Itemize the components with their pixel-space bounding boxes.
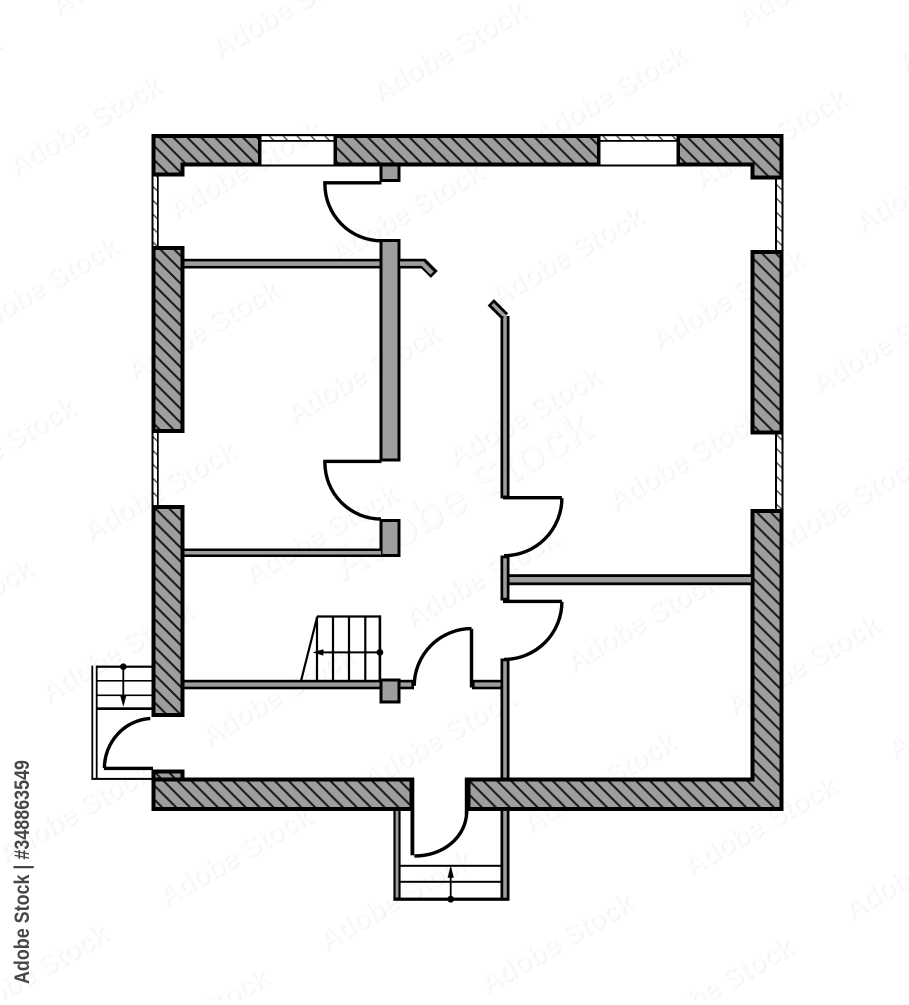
svg-text:Adobe Stock | #348863549: Adobe Stock | #348863549 xyxy=(11,760,34,984)
